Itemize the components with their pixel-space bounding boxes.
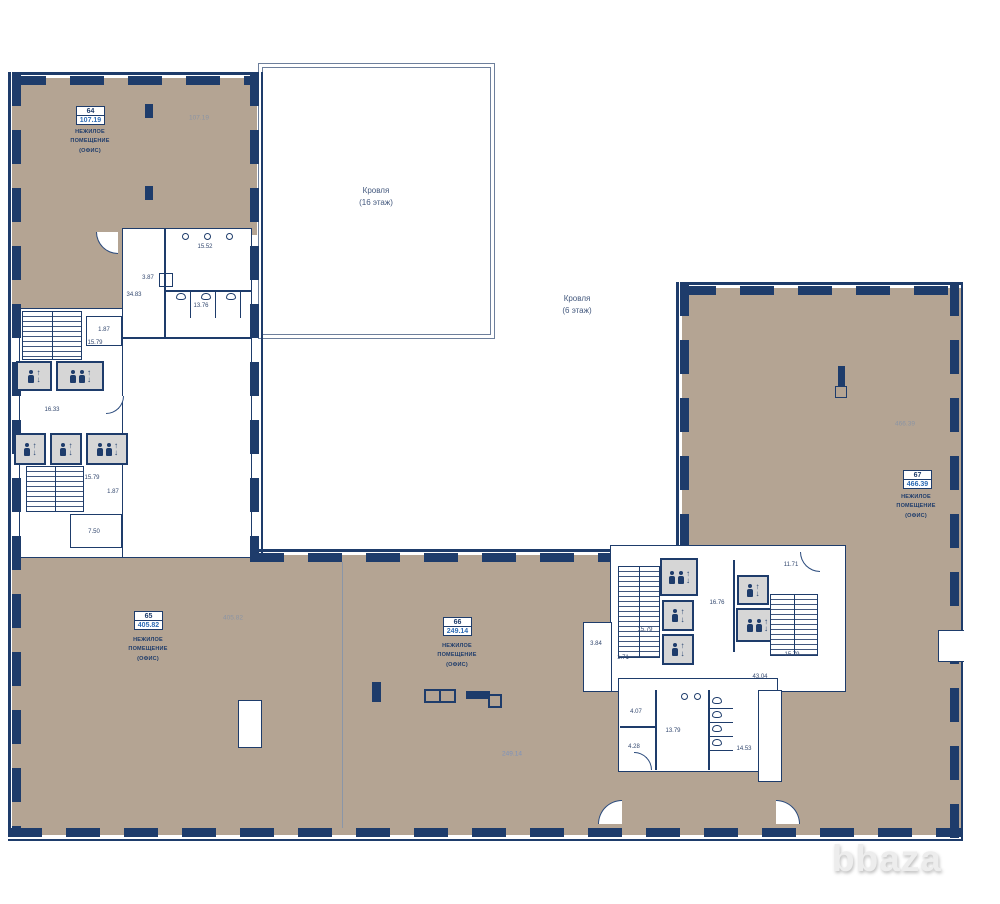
- column: [145, 186, 153, 200]
- room-65-floating-area: 405.82: [223, 615, 243, 622]
- area-dim: 11.71: [784, 562, 799, 568]
- toilet-icon: [712, 725, 722, 732]
- toilet-icon: [712, 697, 722, 704]
- room-area: 405.82: [135, 621, 162, 629]
- stall-wall: [709, 750, 733, 751]
- wall: [164, 290, 252, 292]
- person-icon: [24, 443, 31, 456]
- area-dim: 1.87: [98, 327, 110, 333]
- elevator: ↑↓: [660, 558, 698, 596]
- person-icon: [668, 571, 675, 584]
- elevator-arrows-icon: ↑↓: [681, 608, 685, 622]
- room-67-name: НЕЖИЛОЕПОМЕЩЕНИЕ(ОФИС): [896, 493, 935, 521]
- exterior-wall-room67-left: [676, 282, 689, 550]
- area-dim: 15.79: [637, 627, 652, 633]
- room-66-floating-area: 249.14: [502, 751, 522, 758]
- column-outline: [835, 386, 847, 398]
- elevator-arrows-icon: ↑↓: [114, 442, 118, 456]
- room-number: 65: [135, 612, 162, 621]
- person-icon: [96, 443, 103, 456]
- room-67-floating-area: 466.39: [895, 421, 915, 428]
- room-64-fill: [12, 78, 257, 235]
- room-area: 107.19: [77, 116, 104, 124]
- room-64-badge: 64 107.19: [76, 106, 105, 125]
- exterior-wall-top: [12, 72, 258, 85]
- person-icon: [746, 619, 753, 632]
- area-dim: 3.87: [142, 275, 154, 281]
- room-64-floating-area: 107.19: [189, 115, 209, 122]
- stall-wall: [240, 292, 241, 318]
- area-dim: 14.53: [736, 746, 751, 752]
- column: [838, 366, 845, 386]
- room-area: 466.39: [904, 480, 931, 488]
- wall: [655, 690, 657, 770]
- elevator: ↑↓: [662, 634, 694, 665]
- area-dim: 15.79: [84, 475, 99, 481]
- roof-16-label: Кровля(16 этаж): [359, 185, 393, 209]
- area-dim: 4.07: [630, 709, 642, 715]
- stall-wall: [709, 736, 733, 737]
- elevator: ↑↓: [86, 433, 128, 465]
- person-icon: [60, 443, 67, 456]
- column: [466, 691, 490, 699]
- elevator: ↑↓: [50, 433, 82, 465]
- room-65-name: НЕЖИЛОЕПОМЕЩЕНИЕ(ОФИС): [128, 636, 167, 664]
- stall-wall: [215, 292, 216, 318]
- column: [372, 682, 381, 702]
- person-icon: [672, 609, 679, 622]
- wall: [708, 690, 710, 770]
- area-dim: 1.87: [107, 489, 119, 495]
- room-number: 67: [904, 471, 931, 480]
- wall: [620, 726, 656, 728]
- area-dim: 4.28: [628, 744, 640, 750]
- sink-icon: [204, 233, 211, 240]
- area-dim: 15.79: [87, 340, 102, 346]
- area-dim: 13.76: [193, 303, 208, 309]
- exterior-wall-room67-top: [682, 282, 963, 295]
- toilet-icon: [712, 711, 722, 718]
- bathroom-tall-room: [758, 690, 782, 782]
- elevator: ↑↓: [737, 575, 769, 605]
- elevator-arrows-icon: ↑↓: [69, 442, 73, 456]
- shaft: [159, 273, 173, 287]
- balcony-notch: [938, 630, 964, 662]
- elevator-arrows-icon: ↑↓: [764, 618, 768, 632]
- stall-wall: [709, 722, 733, 723]
- area-dim: 16.33: [44, 407, 59, 413]
- person-icon: [677, 571, 684, 584]
- room-67-badge: 67 466.39: [903, 470, 932, 489]
- equipment-box: [488, 694, 502, 708]
- elevator-arrows-icon: ↑↓: [681, 642, 685, 656]
- sink-icon: [681, 693, 688, 700]
- elevator: ↑↓: [56, 361, 104, 391]
- wall: [439, 690, 441, 702]
- person-icon: [755, 619, 762, 632]
- exterior-wall-room65-top: [250, 549, 612, 562]
- floor-plan: Кровля(16 этаж) Кровля(6 этаж) ↑↓ ↑↓: [0, 0, 1000, 904]
- shaft: [238, 700, 262, 748]
- person-icon: [747, 584, 754, 597]
- room-66-name: НЕЖИЛОЕПОМЕЩЕНИЕ(ОФИС): [437, 642, 476, 670]
- elevator-arrows-icon: ↑↓: [87, 369, 91, 383]
- wall: [342, 562, 343, 828]
- right-core-notch: [583, 622, 612, 692]
- area-dim: 16.76: [709, 600, 724, 606]
- sink-icon: [226, 233, 233, 240]
- stall-wall: [190, 292, 191, 318]
- bbaza-watermark: bbaza: [832, 838, 942, 880]
- stall-wall: [709, 708, 733, 709]
- area-dim: 3.84: [590, 641, 602, 647]
- sink-icon: [694, 693, 701, 700]
- toilet-icon: [201, 293, 211, 300]
- sink-icon: [182, 233, 189, 240]
- roof-6-label: Кровля(6 этаж): [562, 293, 591, 317]
- wall: [733, 560, 735, 652]
- area-dim: 13.79: [665, 728, 680, 734]
- person-icon: [672, 643, 679, 656]
- room-65-badge: 65 405.82: [134, 611, 163, 630]
- room-64-name: НЕЖИЛОЕПОМЕЩЕНИЕ(ОФИС): [70, 128, 109, 156]
- elevator-arrows-icon: ↑↓: [756, 583, 760, 597]
- toilet-icon: [226, 293, 236, 300]
- wall: [122, 337, 252, 339]
- elevator-arrows-icon: ↑↓: [37, 369, 41, 383]
- column: [145, 104, 153, 118]
- area-dim: 1.71: [617, 655, 629, 661]
- room-65-fill: [12, 555, 612, 835]
- elevator-arrows-icon: ↑↓: [33, 442, 37, 456]
- staircase: [26, 466, 84, 512]
- toilet-icon: [176, 293, 186, 300]
- exterior-wall-bottom: [8, 828, 963, 841]
- elevator: ↑↓: [14, 433, 46, 465]
- person-icon: [69, 370, 76, 383]
- elevator: ↑↓: [16, 361, 52, 391]
- elevator: ↑↓: [662, 600, 694, 631]
- room-number: 66: [444, 618, 471, 627]
- person-icon: [78, 370, 85, 383]
- person-icon: [28, 370, 35, 383]
- room-area: 249.14: [444, 627, 471, 635]
- toilet-icon: [712, 739, 722, 746]
- exterior-wall-roofside: [250, 72, 263, 562]
- area-dim: 7.50: [88, 529, 100, 535]
- room-66-badge: 66 249.14: [443, 617, 472, 636]
- area-dim: 15.79: [784, 652, 799, 658]
- staircase: [618, 566, 660, 658]
- room-number: 64: [77, 107, 104, 116]
- exterior-wall-right: [950, 282, 963, 841]
- elevator-arrows-icon: ↑↓: [686, 570, 690, 584]
- staircase: [770, 594, 818, 656]
- person-icon: [105, 443, 112, 456]
- staircase: [22, 311, 82, 360]
- area-dim: 34.83: [126, 292, 141, 298]
- area-dim: 15.52: [197, 244, 212, 250]
